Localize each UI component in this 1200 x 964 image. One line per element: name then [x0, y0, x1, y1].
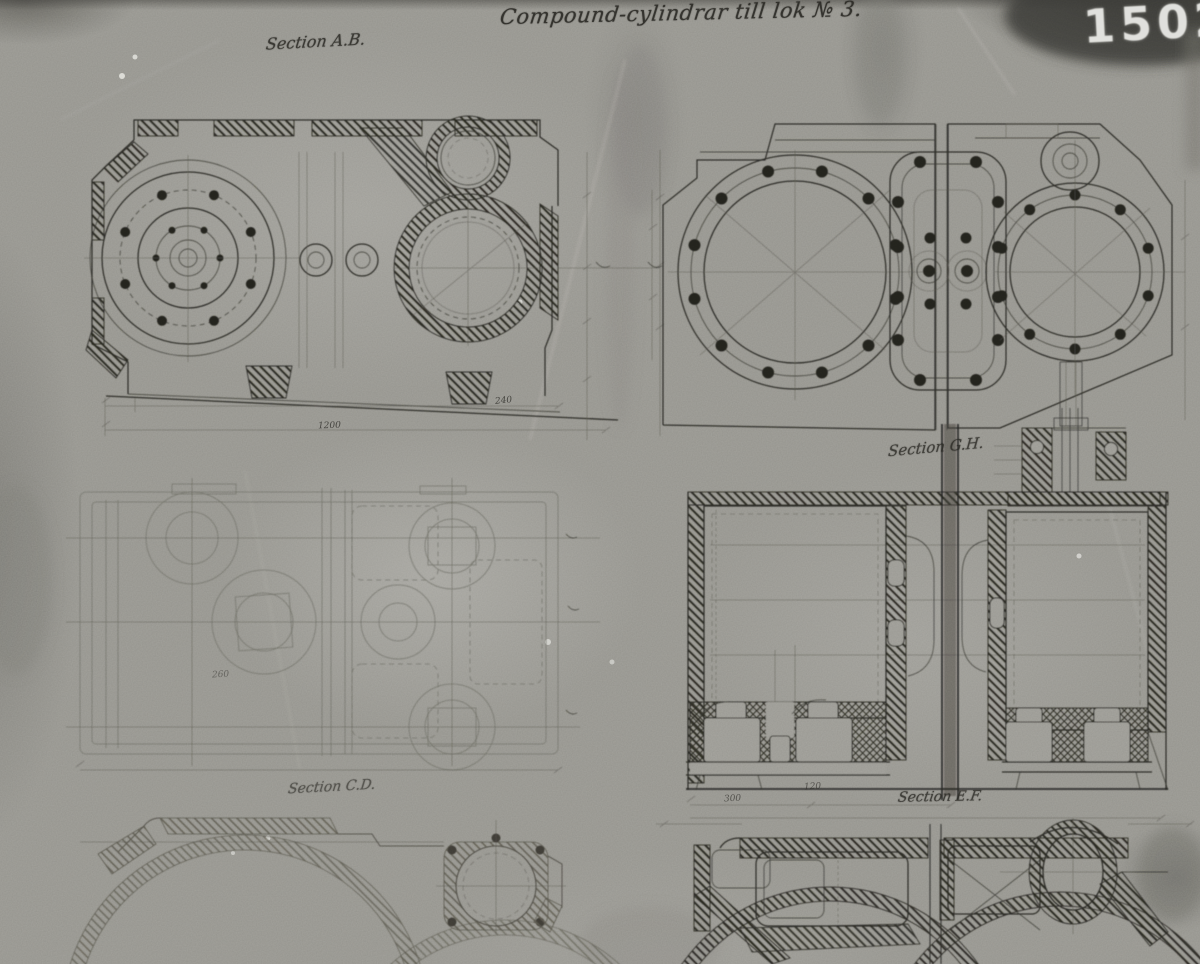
- technical-drawing: [0, 0, 1200, 964]
- photograph-of-engineering-drawing: Compound-cylindrar till lok № 3. 1502 Se…: [0, 0, 1200, 964]
- film-grain-overlay: [0, 0, 1200, 964]
